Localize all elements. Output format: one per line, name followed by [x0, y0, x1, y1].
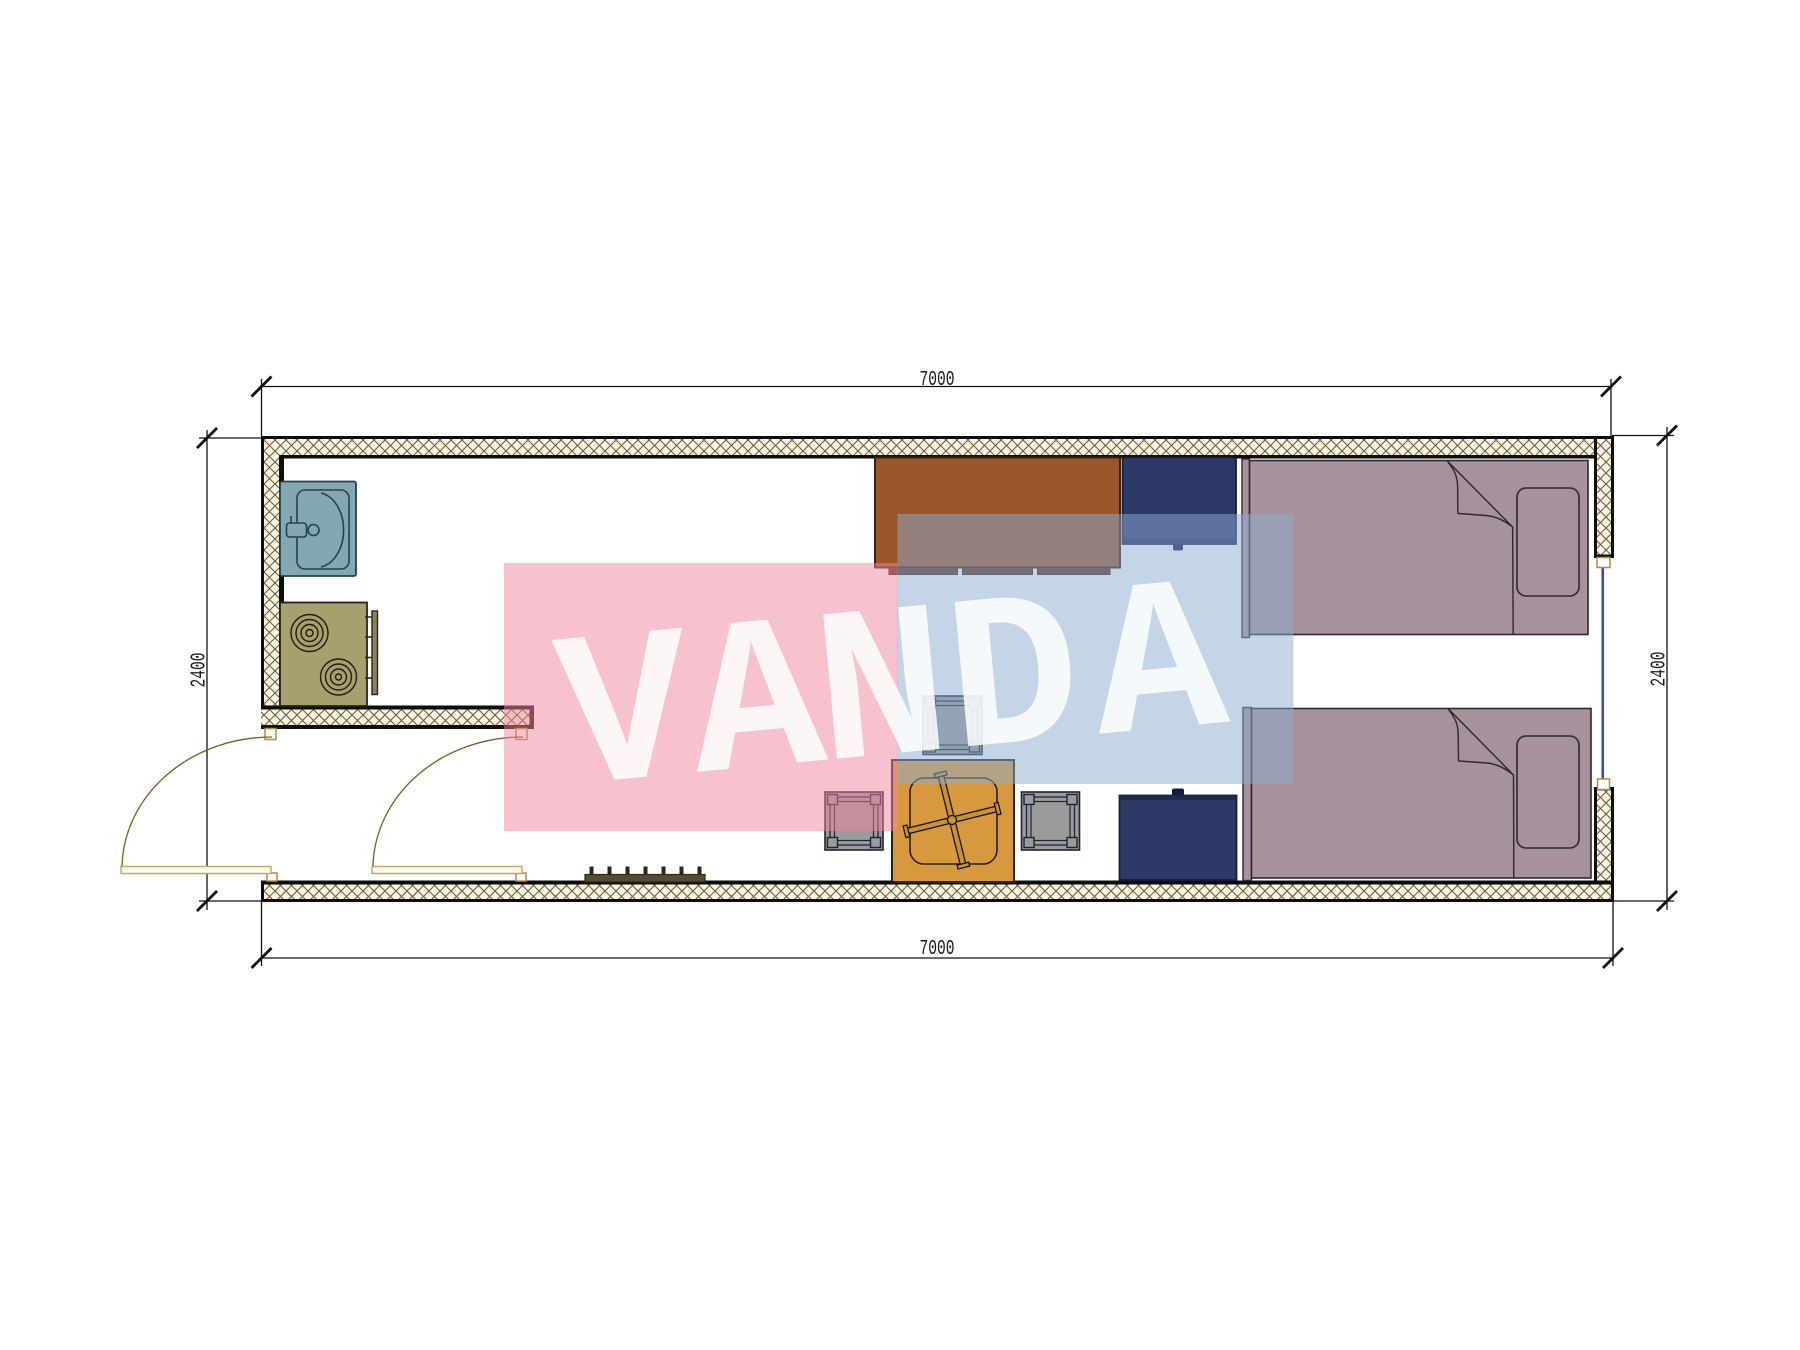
svg-text:7000: 7000 [920, 369, 955, 392]
svg-text:2400: 2400 [189, 653, 212, 688]
svg-text:7000: 7000 [920, 938, 955, 961]
svg-text:N: N [805, 566, 960, 826]
svg-text:A: A [1082, 540, 1238, 800]
svg-text:2400: 2400 [1649, 652, 1672, 687]
svg-text:D: D [937, 554, 1092, 814]
svg-text:V: V [547, 591, 702, 851]
